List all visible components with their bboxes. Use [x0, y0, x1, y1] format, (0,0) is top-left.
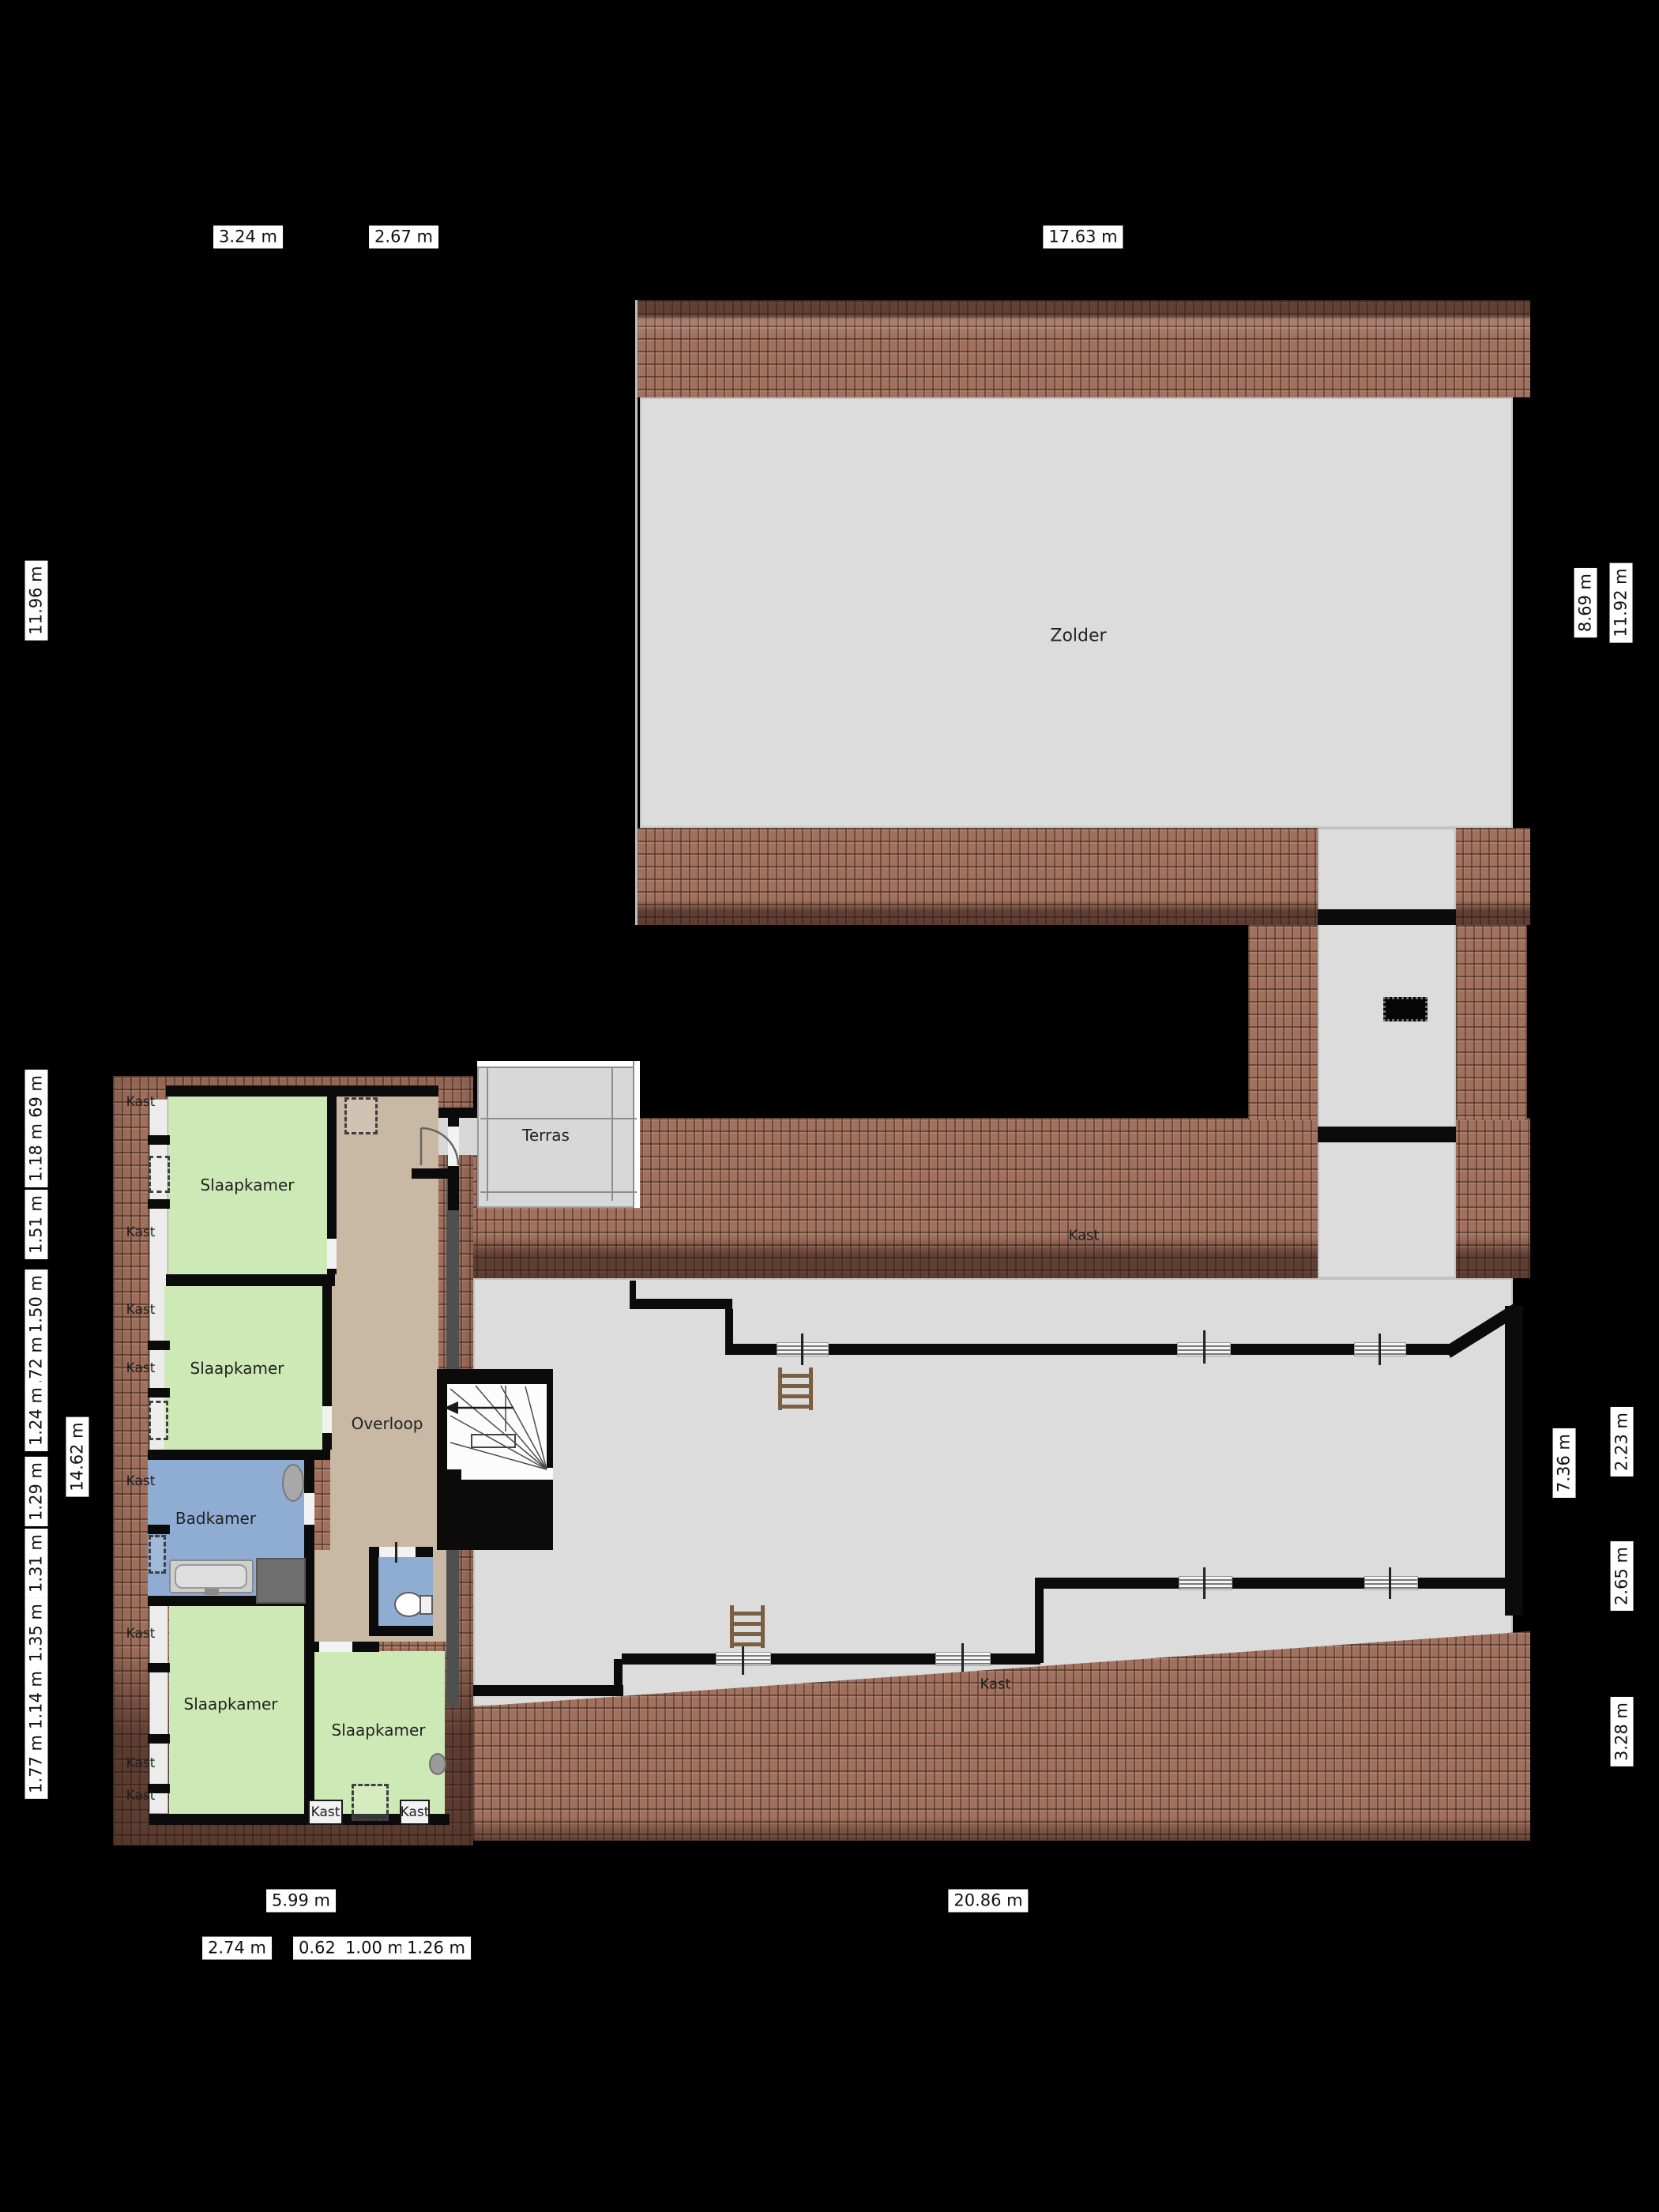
bathtub-faucet — [205, 1589, 219, 1595]
dim-label: 5.99 m — [266, 1890, 336, 1913]
closet-divider — [148, 1135, 170, 1145]
wall — [148, 1450, 330, 1460]
knee-wall-step2 — [1035, 1580, 1044, 1663]
door-opening — [304, 1493, 314, 1525]
roof-window — [149, 1535, 166, 1574]
dim-label: 3.28 m — [1611, 1697, 1634, 1766]
door-opening — [322, 1406, 332, 1433]
terrace-door-opening — [448, 1127, 459, 1166]
dim-label: 1.00 m — [340, 1937, 409, 1960]
room-label-overloop: Overloop — [352, 1414, 423, 1433]
dim-label: 11.96 m — [25, 560, 48, 640]
dim-label: 7.36 m — [1553, 1428, 1576, 1498]
dim-label: 1.29 m — [25, 1457, 48, 1526]
closet-divider — [148, 1341, 170, 1350]
dim-label: 14.62 m — [66, 1416, 89, 1496]
knee-wall-upper — [725, 1344, 1450, 1355]
knee-wall-lower-right — [1035, 1578, 1513, 1589]
toilet-wall-bottom — [369, 1626, 433, 1636]
loft-ladder — [730, 1605, 765, 1648]
stairs — [447, 1384, 547, 1469]
dim-label: 1.26 m — [401, 1937, 471, 1960]
bathtub-inner — [175, 1564, 247, 1589]
wall — [304, 1596, 314, 1823]
closet-label: Kast — [311, 1804, 340, 1820]
knee-wall-step-h — [630, 1299, 732, 1309]
dim-label: 20.86 m — [948, 1890, 1028, 1913]
dim-label: 1.51 m — [25, 1190, 48, 1259]
terrace-railing-top — [477, 1061, 640, 1068]
closet-divider — [148, 1734, 170, 1744]
dim-label: 8.69 m — [1574, 568, 1597, 638]
dormer-wall-upper — [1318, 909, 1456, 925]
door-tick — [395, 1542, 397, 1563]
room-label-zolder: Zolder — [1050, 626, 1106, 646]
bathroom-sink — [282, 1464, 304, 1502]
room-label-slaapkamer-1: Slaapkamer — [201, 1176, 295, 1194]
closet-label: Kast — [126, 1788, 156, 1804]
window-mullion — [742, 1643, 744, 1675]
roof-window — [352, 1784, 389, 1821]
dormer-wall-lower — [1318, 1127, 1456, 1142]
door-opening — [319, 1642, 352, 1652]
dormer-passage — [1318, 828, 1456, 1278]
roof-window — [149, 1401, 168, 1440]
dim-label: 1.35 m — [25, 1598, 48, 1668]
closet-label: Kast — [126, 1473, 156, 1489]
dim-label: 2.67 m — [369, 226, 438, 249]
dim-label: 17.63 m — [1043, 226, 1123, 249]
connector-roof-strip-right — [1456, 925, 1527, 1120]
landing-floor — [330, 1096, 438, 1550]
zolder-floor — [640, 397, 1513, 828]
closet-divider — [148, 1663, 170, 1672]
closet-divider — [148, 1199, 170, 1209]
closet-label: Kast — [126, 1302, 156, 1318]
closet-label: Kast — [401, 1804, 430, 1820]
terrace-railing-right — [633, 1061, 640, 1208]
closet-label: Kast — [126, 1094, 156, 1110]
dim-label: 1.18 m — [25, 1118, 48, 1187]
room-label-slaapkamer-3: Slaapkamer — [184, 1695, 278, 1714]
window-mullion — [961, 1643, 964, 1675]
knee-wall-end — [472, 1685, 623, 1696]
window-mullion — [1379, 1334, 1381, 1365]
toilet-floor — [369, 1547, 433, 1635]
window-mullion — [1389, 1567, 1391, 1599]
chimney — [1383, 997, 1428, 1021]
toilet-tank — [419, 1595, 433, 1615]
window-mullion — [1203, 1567, 1206, 1599]
shower — [256, 1558, 306, 1604]
room-label-kast-band1: Kast — [1069, 1228, 1100, 1244]
wall — [166, 1085, 438, 1097]
dim-label: 1.77 m — [25, 1729, 48, 1799]
toilet-wall-left — [369, 1547, 378, 1635]
roof-window — [149, 1156, 170, 1193]
bedroom-sink — [429, 1753, 446, 1775]
dim-label: 11.92 m — [1610, 562, 1633, 642]
room-label-badkamer: Badkamer — [175, 1509, 256, 1528]
terrace-door-jamb — [448, 1163, 459, 1210]
dim-label: 1.14 m — [25, 1665, 48, 1735]
connector-roof-strip-left — [1248, 925, 1318, 1120]
closet-label: Kast — [126, 1224, 156, 1240]
corridor-window — [1365, 1577, 1417, 1589]
room-label-terras: Terras — [522, 1126, 570, 1145]
zolder-roof-band-top — [637, 300, 1530, 397]
room-label-slaapkamer-4: Slaapkamer — [332, 1721, 426, 1740]
closet-divider — [148, 1388, 170, 1398]
closet-label: Kast — [126, 1755, 156, 1771]
door-opening — [327, 1239, 337, 1269]
corridor-window — [1179, 1577, 1232, 1589]
dim-label: 2.23 m — [1611, 1407, 1634, 1477]
corridor-right-wall — [1505, 1306, 1523, 1616]
door-opening — [379, 1547, 416, 1557]
room-label-kast-band2: Kast — [980, 1676, 1011, 1693]
dim-label: 1.24 m — [25, 1382, 48, 1451]
zolder-left-edge — [635, 300, 638, 925]
closet-label: Kast — [126, 1360, 156, 1376]
roof-window — [344, 1097, 378, 1134]
dim-label: 2.65 m — [1611, 1541, 1634, 1611]
closet-divider — [148, 1525, 170, 1534]
stairs-well-box — [471, 1434, 516, 1448]
dim-label: 2.74 m — [202, 1937, 272, 1960]
dim-label: 1.31 m — [25, 1529, 48, 1598]
window-mullion — [1203, 1330, 1206, 1364]
room-label-slaapkamer-2: Slaapkamer — [190, 1359, 284, 1378]
loft-ladder — [778, 1367, 813, 1410]
closet-label: Kast — [126, 1626, 156, 1642]
window-mullion — [801, 1334, 803, 1365]
band-shadow — [473, 1817, 1530, 1841]
roof-valley-strip — [446, 1550, 459, 1706]
dim-label: 1.50 m — [25, 1270, 48, 1339]
dim-label: 3.24 m — [213, 226, 283, 249]
attic-floor-plan: Zolder Slaapkamer Slaapkamer Badkamer Sl… — [0, 0, 1659, 2212]
wall — [166, 1274, 335, 1286]
stairs-landing — [461, 1468, 553, 1480]
